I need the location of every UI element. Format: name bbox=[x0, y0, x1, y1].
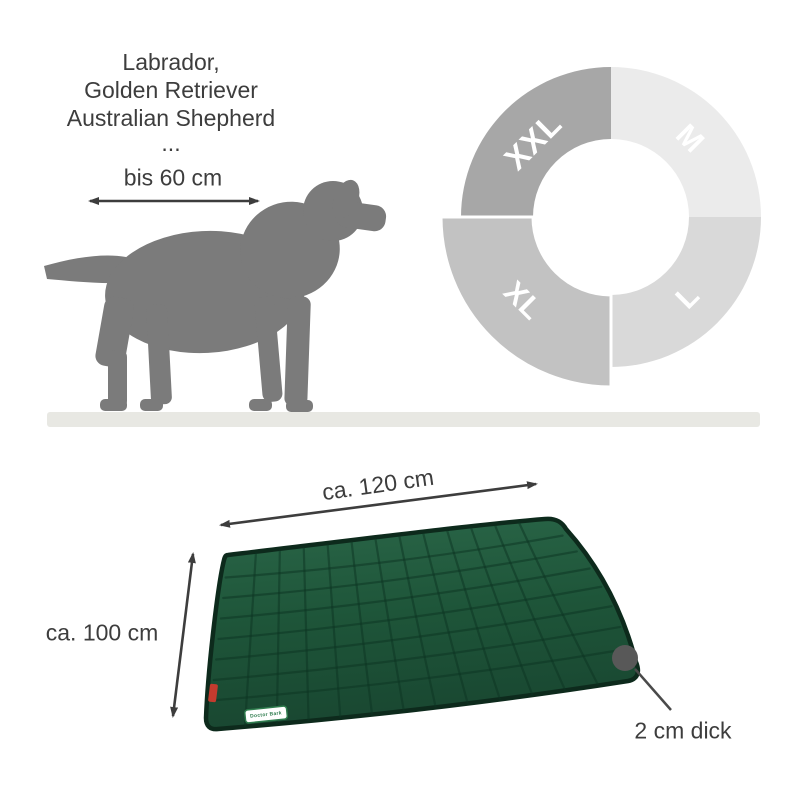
dog-paw bbox=[249, 399, 272, 411]
dog-mat bbox=[206, 519, 671, 729]
dog-front-leg bbox=[284, 296, 311, 407]
thickness-pointer-line bbox=[635, 669, 671, 710]
mat-outline bbox=[206, 519, 638, 729]
dog-paw bbox=[140, 399, 163, 411]
dog-paw bbox=[100, 399, 127, 411]
ground-line bbox=[47, 412, 760, 427]
breed-line: Golden Retriever bbox=[67, 76, 275, 104]
infographic-canvas: XXL M XL L Labrador, Golden Retriever Au… bbox=[0, 0, 800, 800]
mat-thickness-label: 2 cm dick bbox=[634, 718, 731, 745]
dog-paw bbox=[286, 400, 313, 412]
mat-height-label: ca. 100 cm bbox=[46, 620, 159, 647]
breed-line: Australian Shepherd bbox=[67, 104, 275, 132]
dog-silhouette bbox=[44, 176, 388, 412]
mat-height-arrow bbox=[173, 554, 193, 716]
size-wheel: XXL M XL L bbox=[441, 67, 761, 387]
thickness-dot bbox=[612, 645, 638, 671]
breed-list: Labrador, Golden Retriever Australian Sh… bbox=[67, 48, 275, 154]
shoulder-width-label: bis 60 cm bbox=[124, 165, 222, 192]
breed-ellipsis: ... bbox=[67, 132, 275, 154]
breed-line: Labrador, bbox=[67, 48, 275, 76]
